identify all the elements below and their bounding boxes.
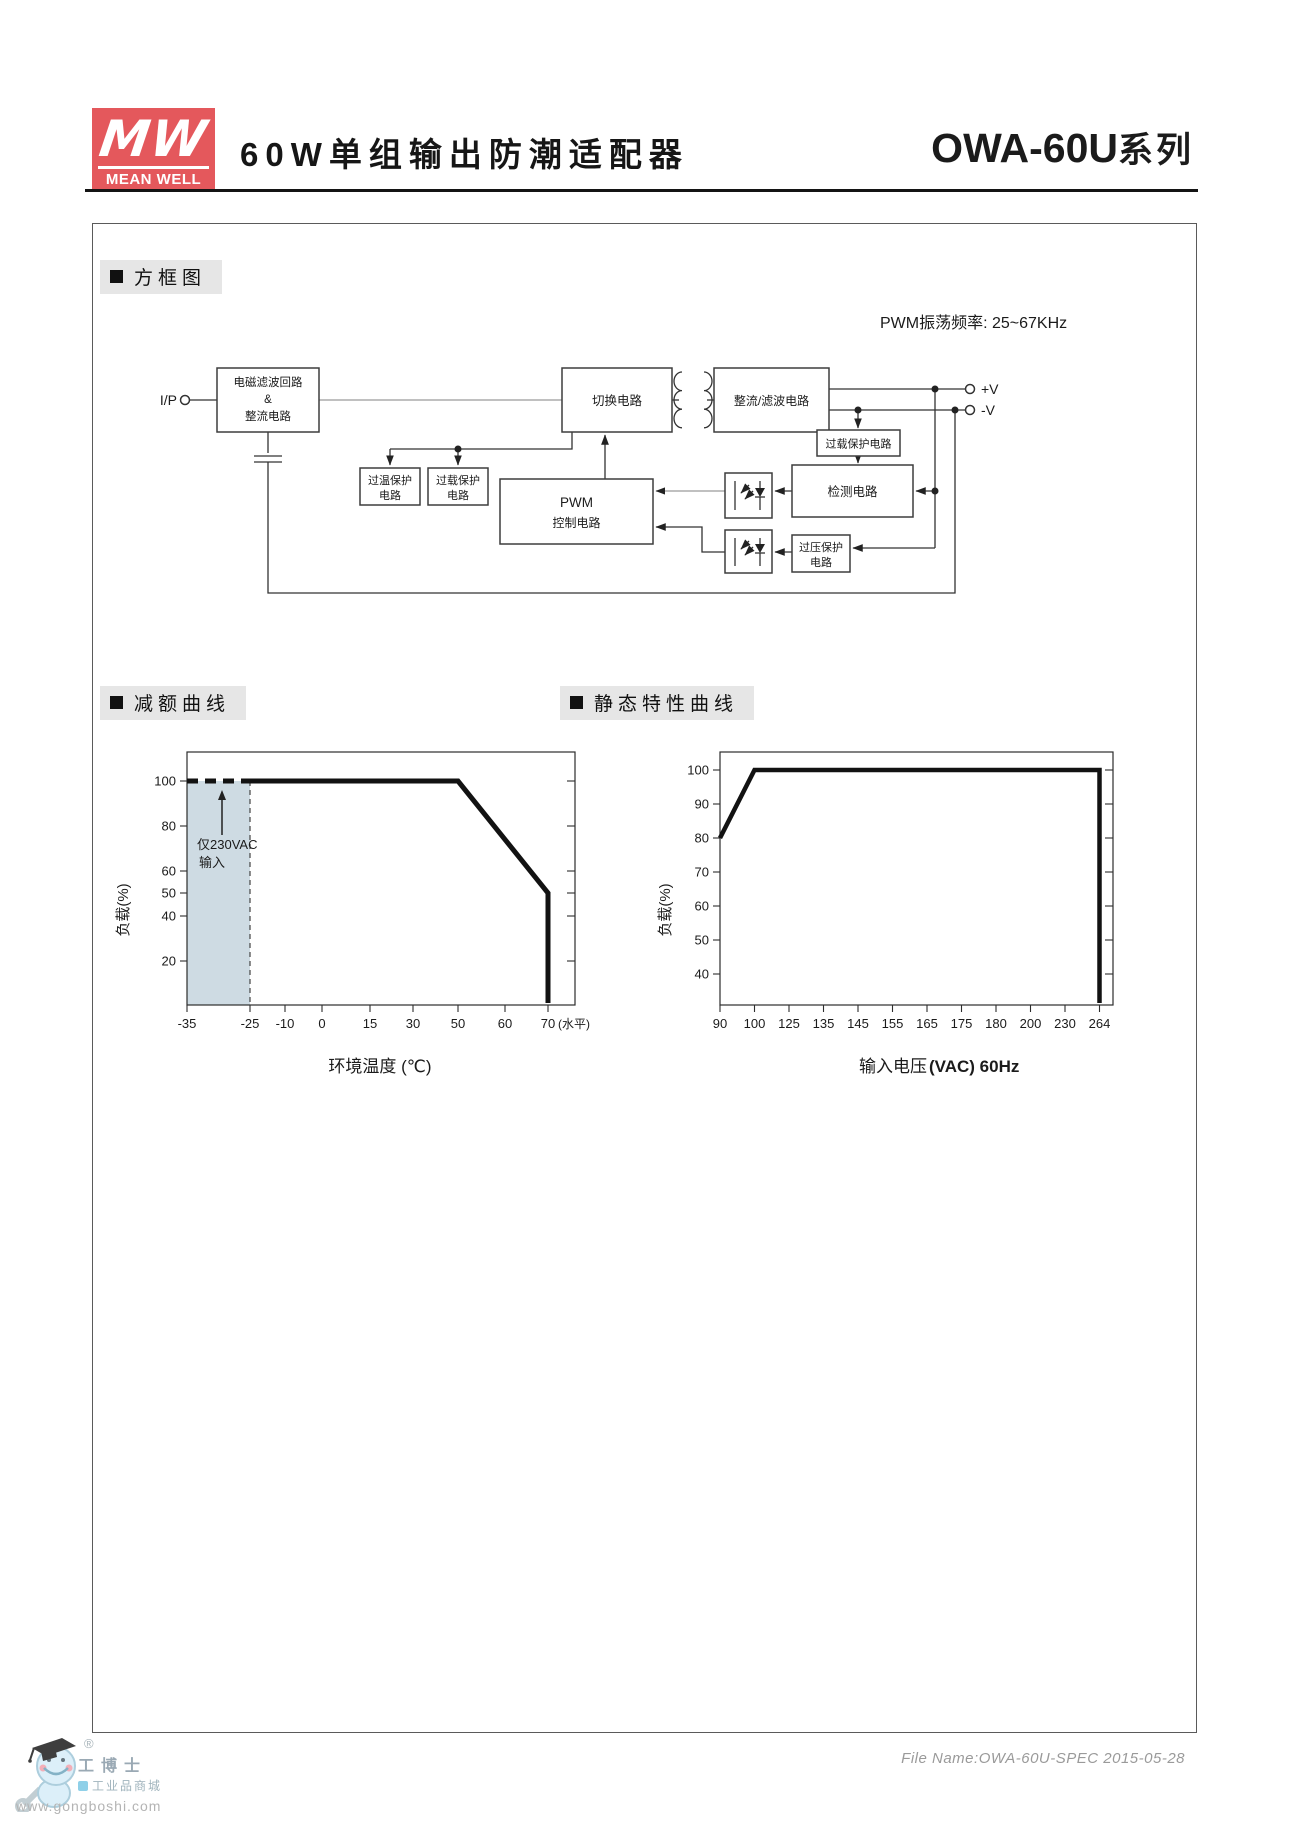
junction-dot: [952, 407, 959, 414]
block-label: 电磁滤波回路: [234, 375, 303, 389]
junction-dot: [932, 488, 939, 495]
block-label: &: [264, 394, 272, 406]
x-axis-title: 环境温度 (℃): [328, 1057, 431, 1076]
x-tick-label: 60: [498, 1016, 512, 1031]
block-label: 过温保护: [368, 473, 412, 487]
x-tick-label: 145: [847, 1016, 869, 1031]
block-label: 控制电路: [552, 515, 600, 530]
annotation-line1: 仅230VAC: [197, 837, 257, 852]
optocoupler-icon: [725, 473, 772, 518]
block-label: 电路: [810, 556, 832, 569]
page-title: 60W单组输出防潮适配器: [240, 128, 689, 176]
block-rectifier-filter: 整流/滤波电路: [714, 368, 829, 432]
x-tick-label: 165: [916, 1016, 938, 1031]
x-tick-label: 175: [951, 1016, 973, 1031]
x-axis-labels: -35 -25 -10 0 15 30 50 60 70 (水平): [178, 1016, 590, 1031]
block-label: 检测电路: [827, 484, 878, 499]
x-tick-label: -10: [276, 1016, 295, 1031]
series-model: OWA-60U: [931, 125, 1118, 172]
block-label: 切换电路: [592, 393, 643, 408]
logo-mw-text: MW: [96, 112, 211, 166]
x-tick-label: 180: [985, 1016, 1007, 1031]
x-tick-label: 135: [813, 1016, 835, 1031]
junction-dot: [455, 446, 462, 453]
x-tick-label: 0: [318, 1016, 325, 1031]
x-tick-label: 50: [451, 1016, 465, 1031]
header-rule: [85, 189, 1198, 192]
vplus-terminal-circle: [966, 385, 975, 394]
block-emi-filter: 电磁滤波回路 & 整流电路: [217, 368, 319, 432]
y-tick-label: 50: [695, 933, 709, 948]
x-axis-ticks: [187, 1005, 548, 1012]
y-tick-label: 100: [154, 774, 176, 789]
x-tick-label: 15: [363, 1016, 377, 1031]
section-square-icon: [570, 696, 583, 709]
section-label-text: 静态特性曲线: [594, 689, 738, 716]
x-tick-label: 230: [1054, 1016, 1076, 1031]
x-tick-label: 90: [713, 1016, 727, 1031]
x-tick-label: -25: [241, 1016, 260, 1031]
watermark-subtitle: 工业品商城: [78, 1777, 162, 1794]
static-characteristic-chart: 100 90 80 70 60 50 40 90 100 125 13: [630, 740, 1140, 1100]
watermark-url: www.gongboshi.com: [16, 1798, 161, 1814]
block-label: PWM: [560, 495, 593, 510]
derating-chart: 100 80 60 50 40 20 -35 -25 -10 0 15 30 5…: [100, 740, 600, 1100]
plot-frame: [720, 752, 1113, 1005]
x-tick-label: 200: [1020, 1016, 1042, 1031]
output-terminals: +V -V: [966, 381, 1000, 418]
y-axis-ticks: [713, 770, 1113, 974]
block-detection: 检测电路: [792, 465, 913, 517]
y-tick-label: 50: [162, 886, 176, 901]
input-terminal: I/P: [160, 392, 190, 408]
y-tick-label: 60: [162, 864, 176, 879]
meanwell-logo: MW MEAN WELL: [92, 108, 215, 192]
block-label: 过载保护电路: [826, 437, 892, 451]
block-switching: 切换电路: [562, 368, 672, 432]
y-tick-label: 40: [162, 909, 176, 924]
block-label: 电路: [447, 489, 469, 502]
pwm-frequency-note: PWM振荡频率: 25~67KHz: [880, 314, 1067, 332]
block-pwm-control: PWM 控制电路: [500, 479, 653, 544]
x-tick-label: 100: [744, 1016, 766, 1031]
x-tick-label: 30: [406, 1016, 420, 1031]
series-suffix: 系列: [1118, 122, 1194, 173]
x-axis-title-en: (VAC) 60Hz: [929, 1057, 1019, 1076]
junction-dot: [932, 386, 939, 393]
transformer-icon: [674, 372, 712, 428]
section-label-text: 方框图: [134, 263, 206, 290]
y-tick-label: 70: [695, 865, 709, 880]
y-tick-label: 20: [162, 954, 176, 969]
watermark-subtitle-text: 工业品商城: [92, 1777, 162, 1794]
x-axis-ticks: [720, 1005, 1100, 1012]
series-title: OWA-60U系列: [931, 122, 1194, 173]
section-label-text: 减额曲线: [134, 689, 230, 716]
block-diagram: PWM振荡频率: 25~67KHz: [92, 295, 1197, 635]
x-tick-label: 125: [778, 1016, 800, 1031]
section-block-diagram: 方框图: [100, 260, 222, 294]
derating-curve: [252, 781, 548, 1003]
y-tick-label: 60: [695, 899, 709, 914]
block-overload-protection-output: 过载保护电路: [817, 430, 900, 456]
input-terminal-circle: [181, 396, 190, 405]
section-square-icon: [110, 270, 123, 283]
x-tick-label: 264: [1089, 1016, 1111, 1031]
x-tick-label: 155: [882, 1016, 904, 1031]
block-over-temperature-protection: 过温保护 电路: [360, 468, 420, 505]
shop-icon: [78, 1781, 88, 1791]
block-label: 电路: [379, 489, 401, 502]
registered-mark: ®: [84, 1736, 94, 1751]
y-tick-label: 80: [162, 819, 176, 834]
vplus-label: +V: [981, 381, 999, 397]
section-static-curve: 静态特性曲线: [560, 686, 754, 720]
watermark-brand: 工博士: [78, 1752, 147, 1776]
static-curve: [720, 770, 1100, 1003]
y-axis-labels: 100 90 80 70 60 50 40: [687, 763, 709, 982]
block-label: 整流/滤波电路: [734, 393, 809, 408]
block-overload-protection: 过载保护 电路: [428, 468, 488, 505]
y-tick-label: 80: [695, 831, 709, 846]
block-over-voltage-protection: 过压保护 电路: [792, 535, 850, 572]
y-tick-label: 90: [695, 797, 709, 812]
section-square-icon: [110, 696, 123, 709]
y-axis-labels: 100 80 60 50 40 20: [154, 774, 176, 969]
shaded-230vac-region: [187, 781, 250, 1005]
input-label: I/P: [160, 392, 177, 408]
y-axis-title: 负载(%): [115, 883, 132, 936]
x-axis-labels: 90 100 125 135 145 155 165 175 180 200 2…: [713, 1016, 1111, 1031]
x-axis-suffix: (水平): [558, 1017, 590, 1031]
vminus-terminal-circle: [966, 406, 975, 415]
datasheet-page: MW MEAN WELL 60W单组输出防潮适配器 OWA-60U系列 方框图 …: [0, 0, 1290, 1825]
block-label: 过载保护: [436, 473, 480, 487]
vminus-label: -V: [981, 402, 996, 418]
section-derating-curve: 减额曲线: [100, 686, 246, 720]
optocoupler-icon: [725, 530, 772, 573]
block-label: 过压保护: [799, 540, 843, 554]
block-label: 整流电路: [245, 409, 291, 423]
x-tick-label: 70: [541, 1016, 555, 1031]
y-axis-title: 负载(%): [657, 883, 674, 936]
annotation-line2: 输入: [199, 855, 225, 870]
x-tick-label: -35: [178, 1016, 197, 1031]
file-info: File Name:OWA-60U-SPEC 2015-05-28: [700, 1750, 1185, 1767]
y-tick-label: 40: [695, 967, 709, 982]
junction-dot: [855, 407, 862, 414]
x-axis-title-cn: 输入电压: [859, 1057, 927, 1076]
y-tick-label: 100: [687, 763, 709, 778]
